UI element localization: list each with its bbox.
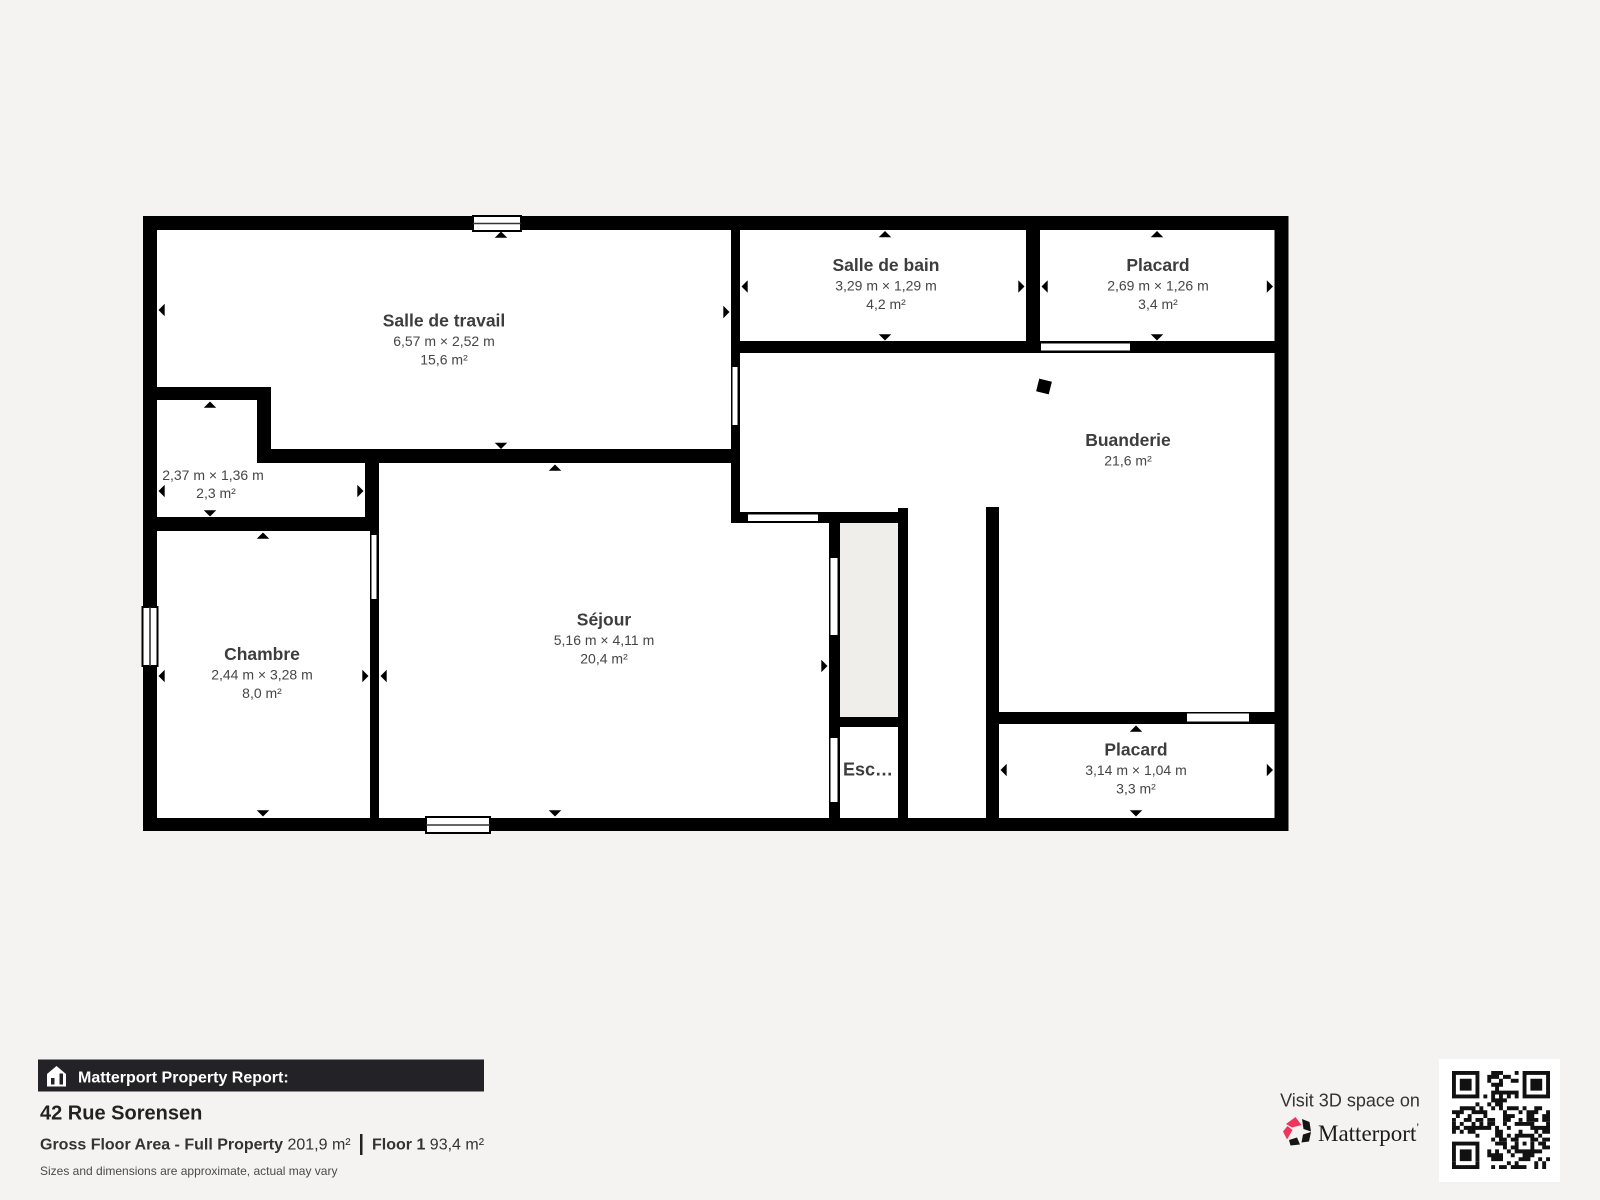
svg-text:20,4 m²: 20,4 m² — [580, 651, 628, 667]
svg-text:Placard: Placard — [1126, 255, 1189, 275]
svg-text:2,69 m × 1,26 m: 2,69 m × 1,26 m — [1107, 278, 1209, 294]
svg-text:8,0 m²: 8,0 m² — [242, 685, 282, 701]
svg-text:15,6 m²: 15,6 m² — [420, 352, 468, 368]
svg-text:3,14 m × 1,04 m: 3,14 m × 1,04 m — [1085, 762, 1187, 778]
svg-text:Salle de travail: Salle de travail — [383, 311, 506, 331]
svg-text:Buanderie: Buanderie — [1085, 430, 1171, 450]
svg-text:Floor 1 93,4 m²: Floor 1 93,4 m² — [372, 1136, 485, 1153]
svg-text:Matterport Property Report:: Matterport Property Report: — [78, 1069, 289, 1086]
svg-text:42 Rue Sorensen: 42 Rue Sorensen — [40, 1103, 202, 1125]
svg-text:21,6 m²: 21,6 m² — [1104, 452, 1152, 468]
svg-text:Séjour: Séjour — [577, 610, 632, 630]
svg-text:3,4 m²: 3,4 m² — [1138, 296, 1178, 312]
svg-text:3,29 m × 1,29 m: 3,29 m × 1,29 m — [835, 278, 937, 294]
svg-text:6,57 m × 2,52 m: 6,57 m × 2,52 m — [393, 333, 495, 349]
svg-text:Esc…: Esc… — [843, 760, 893, 780]
svg-text:5,16 m × 4,11 m: 5,16 m × 4,11 m — [554, 632, 655, 648]
svg-text:2,37 m × 1,36 m: 2,37 m × 1,36 m — [162, 467, 264, 483]
svg-text:Sizes and dimensions are appro: Sizes and dimensions are approximate, ac… — [40, 1164, 337, 1178]
svg-text:4,2 m²: 4,2 m² — [866, 296, 906, 312]
svg-text:Placard: Placard — [1104, 740, 1167, 760]
svg-text:Visit 3D space on: Visit 3D space on — [1280, 1091, 1420, 1111]
svg-text:Salle de bain: Salle de bain — [833, 255, 940, 275]
svg-text:3,3 m²: 3,3 m² — [1116, 781, 1156, 797]
svg-text:Gross Floor Area - Full Proper: Gross Floor Area - Full Property 201,9 m… — [40, 1136, 351, 1153]
svg-text:Matterport’: Matterport’ — [1318, 1121, 1419, 1146]
svg-text:2,44 m × 3,28 m: 2,44 m × 3,28 m — [211, 667, 313, 683]
svg-text:2,3 m²: 2,3 m² — [196, 485, 236, 501]
svg-text:Chambre: Chambre — [224, 644, 300, 664]
